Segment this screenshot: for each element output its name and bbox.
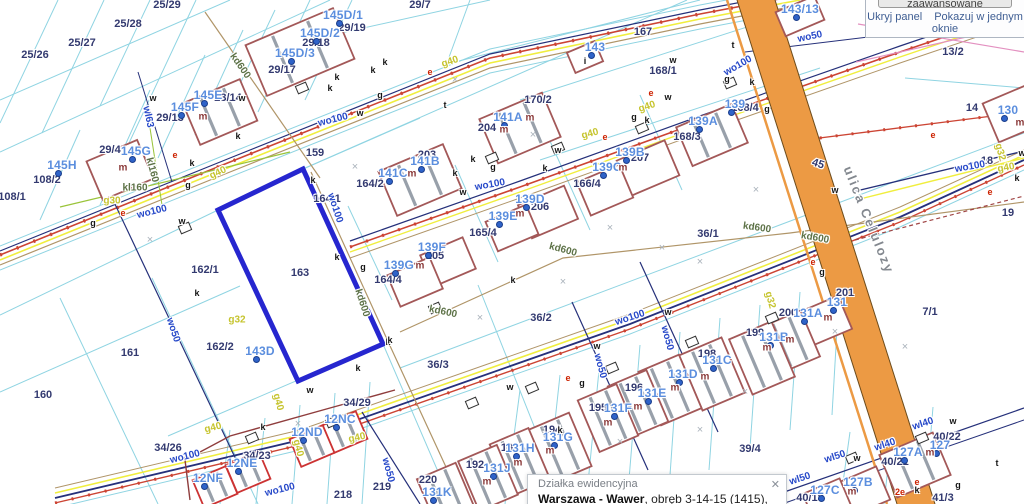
- parcel-info-panel: Działka ewidencyjna ✕ Warszawa - Wawer, …: [527, 474, 787, 504]
- parcel-region: Warszawa - Wawer: [538, 492, 644, 504]
- top-right-panel: Szukanie zaawansowane Ukryj panel Pokazu…: [865, 0, 1024, 38]
- map-viewport[interactable]: 25/2925/2825/2725/2629/729/1929/1829/172…: [0, 0, 1024, 504]
- info-panel-title: Działka ewidencyjna: [538, 478, 638, 490]
- parcel-description: Warszawa - Wawer, obręb 3-14-15 (1415), …: [538, 492, 778, 504]
- show-one-window-link[interactable]: Pokazuj w jednym oknie: [932, 11, 1023, 35]
- advanced-search-button[interactable]: Szukanie zaawansowane: [878, 0, 1012, 8]
- cadastral-map[interactable]: [0, 0, 1024, 504]
- close-icon[interactable]: ✕: [771, 478, 780, 491]
- hide-panel-link[interactable]: Ukryj panel: [867, 11, 922, 23]
